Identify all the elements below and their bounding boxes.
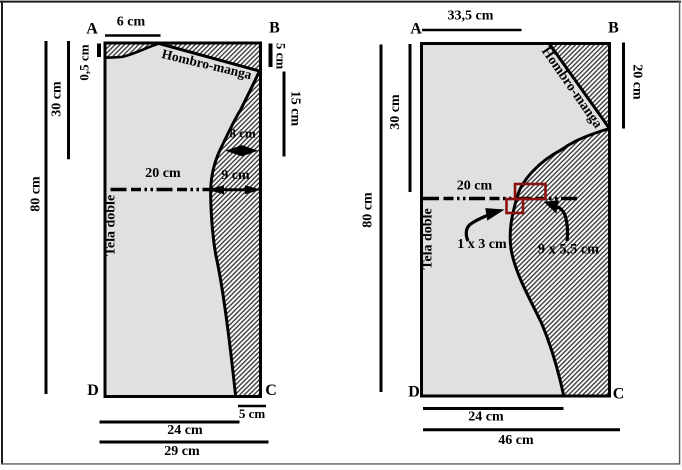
svg-text:29 cm: 29 cm: [164, 444, 200, 459]
svg-text:5 cm: 5 cm: [274, 43, 289, 70]
svg-text:5 cm: 5 cm: [239, 406, 266, 421]
svg-text:Tela doble: Tela doble: [420, 208, 435, 269]
svg-text:80 cm: 80 cm: [361, 192, 376, 228]
svg-text:24 cm: 24 cm: [468, 410, 504, 425]
svg-text:20 cm: 20 cm: [630, 64, 645, 100]
svg-text:Tela doble: Tela doble: [103, 195, 118, 256]
svg-text:30 cm: 30 cm: [50, 81, 65, 117]
svg-text:15 cm: 15 cm: [288, 91, 303, 127]
svg-text:C: C: [613, 386, 625, 403]
svg-text:30 cm: 30 cm: [388, 94, 403, 130]
svg-text:80 cm: 80 cm: [29, 176, 44, 212]
svg-text:0,5 cm: 0,5 cm: [77, 44, 92, 80]
svg-text:24 cm: 24 cm: [167, 423, 203, 438]
svg-text:1 x 3 cm: 1 x 3 cm: [457, 237, 507, 252]
svg-text:B: B: [608, 20, 619, 37]
svg-text:46 cm: 46 cm: [498, 433, 534, 448]
svg-text:20 cm: 20 cm: [145, 166, 181, 181]
svg-text:D: D: [87, 382, 99, 399]
svg-text:B: B: [269, 20, 280, 37]
svg-text:20 cm: 20 cm: [457, 179, 493, 194]
svg-text:C: C: [265, 382, 277, 399]
svg-text:33,5 cm: 33,5 cm: [448, 9, 494, 24]
svg-text:9 x 5,5 cm: 9 x 5,5 cm: [538, 242, 599, 258]
svg-text:6 cm: 6 cm: [117, 15, 146, 30]
svg-text:A: A: [410, 21, 422, 38]
svg-text:D: D: [408, 384, 420, 401]
svg-text:A: A: [86, 21, 98, 38]
svg-text:8 cm: 8 cm: [229, 125, 256, 140]
svg-text:9 cm: 9 cm: [221, 168, 250, 183]
